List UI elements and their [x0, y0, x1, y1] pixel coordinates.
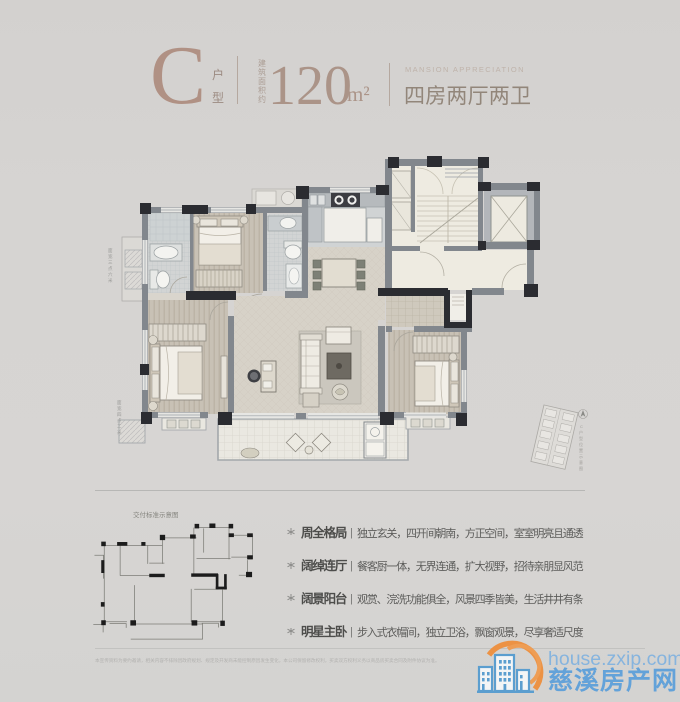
- svg-text:米: 米: [117, 429, 122, 436]
- svg-text:米: 米: [108, 277, 113, 284]
- svg-text:意: 意: [579, 459, 583, 465]
- svg-text:|: |: [350, 527, 353, 539]
- svg-text:步入式衣帽间，独立卫浴，飘窗观景，尽享奢适尺度: 步入式衣帽间，独立卫浴，飘窗观景，尽享奢适尺度: [357, 625, 584, 639]
- svg-text:C: C: [580, 424, 583, 429]
- svg-text:宽: 宽: [117, 405, 122, 412]
- svg-text:积: 积: [258, 85, 266, 95]
- svg-text:示: 示: [579, 454, 583, 459]
- svg-text:C: C: [150, 29, 206, 122]
- svg-text:六: 六: [108, 271, 113, 278]
- svg-text:筑: 筑: [258, 67, 266, 77]
- svg-text:四房两厅两卫: 四房两厅两卫: [404, 85, 531, 108]
- svg-text:约: 约: [258, 94, 266, 104]
- svg-text:观赏、浣洗功能俱全，风景四季皆美，生活井井有条: 观赏、浣洗功能俱全，风景四季皆美，生活井井有条: [357, 592, 584, 606]
- svg-text:|: |: [350, 626, 353, 638]
- svg-text:餐客厨一体，无界连通，扩大视野，招待亲朋显风范: 餐客厨一体，无界连通，扩大视野，招待亲朋显风范: [357, 559, 584, 573]
- svg-text:交付标准示意图: 交付标准示意图: [133, 510, 179, 519]
- svg-text:明星主卧: 明星主卧: [301, 624, 348, 639]
- svg-text:建: 建: [258, 58, 266, 68]
- svg-text:四: 四: [117, 412, 122, 417]
- svg-text:独立玄关，四开间朝南，方正空间，室室明亮且通透: 独立玄关，四开间朝南，方正空间，室室明亮且通透: [357, 526, 584, 540]
- svg-text:本宣传资料为要约邀请，相关内容不排除因政府规划、规定及开发商: 本宣传资料为要约邀请，相关内容不排除因政府规划、规定及开发商未能控制原因发生变化…: [95, 657, 440, 664]
- svg-text:m²: m²: [347, 82, 370, 106]
- svg-text:|: |: [350, 560, 353, 572]
- svg-text:宽: 宽: [108, 253, 113, 260]
- svg-text:周全格局: 周全格局: [301, 525, 347, 540]
- svg-text:|: |: [350, 593, 353, 605]
- svg-text:面: 面: [258, 77, 266, 86]
- svg-text:二: 二: [117, 424, 122, 429]
- svg-text:户: 户: [579, 429, 583, 435]
- svg-text:阔景阳台: 阔景阳台: [301, 591, 347, 606]
- svg-text:型: 型: [579, 435, 583, 441]
- svg-text:图: 图: [579, 465, 583, 471]
- svg-text:MANSION APPRECIATION: MANSION APPRECIATION: [405, 65, 525, 74]
- svg-text:位: 位: [579, 441, 583, 447]
- svg-text:慈溪房产网: 慈溪房产网: [548, 666, 678, 695]
- svg-text:户: 户: [212, 67, 224, 82]
- svg-text:置: 置: [579, 447, 583, 453]
- svg-text:三: 三: [108, 260, 113, 265]
- svg-text:型: 型: [212, 91, 224, 105]
- svg-text:120: 120: [268, 55, 352, 117]
- svg-text:阔绰连厅: 阔绰连厅: [301, 558, 348, 573]
